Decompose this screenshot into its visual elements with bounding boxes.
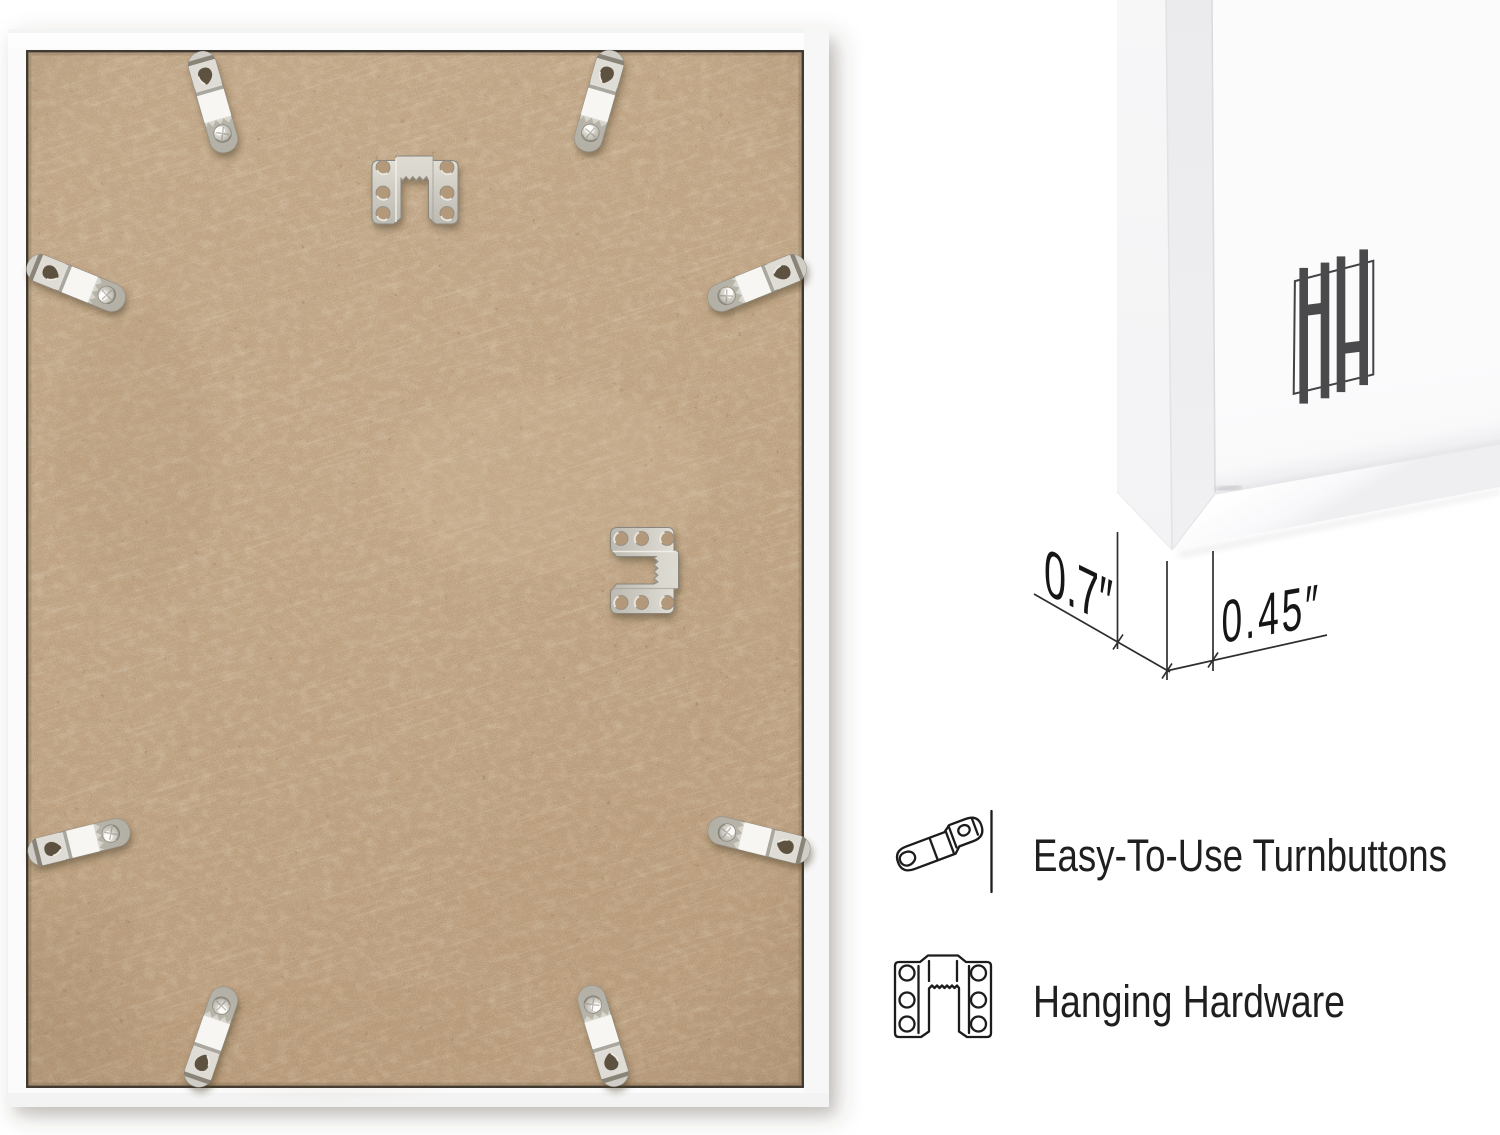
svg-text:Easy-To-Use Turnbuttons: Easy-To-Use Turnbuttons [1033,830,1447,881]
svg-text:Hanging Hardware: Hanging Hardware [1033,976,1345,1027]
